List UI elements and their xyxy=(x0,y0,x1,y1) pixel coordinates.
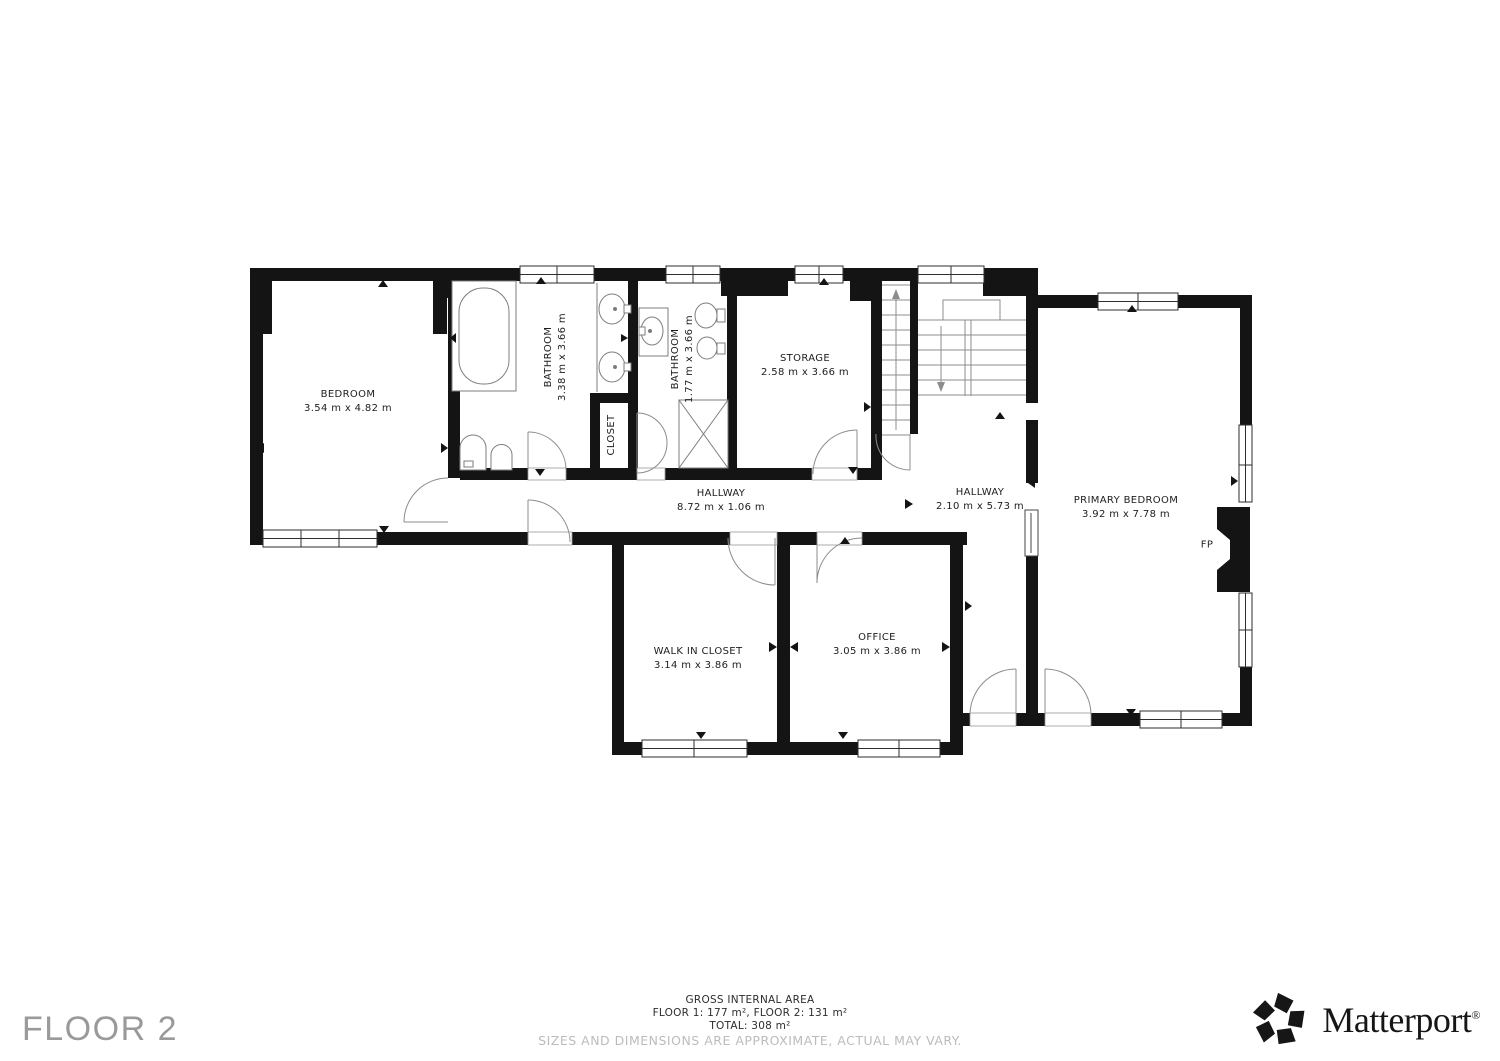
pocket-door xyxy=(1025,510,1038,556)
room-name: HALLWAY xyxy=(677,487,765,501)
room-name: OFFICE xyxy=(833,631,921,645)
fireplace-label: FP xyxy=(1201,540,1214,551)
room-name: CLOSET xyxy=(605,415,619,456)
room-label-office: OFFICE 3.05 m x 3.86 m xyxy=(833,631,921,659)
fireplace-icon xyxy=(1217,507,1250,592)
room-name: PRIMARY BEDROOM xyxy=(1074,494,1178,508)
shower-icon xyxy=(679,400,728,468)
room-label-bathroom-main: BATHROOM 3.38 m x 3.66 m xyxy=(542,313,570,401)
brand-name: Matterport xyxy=(1322,1000,1471,1040)
room-label-hallway-main: HALLWAY 8.72 m x 1.06 m xyxy=(677,487,765,515)
toilet-icon xyxy=(695,303,725,328)
sink-icon xyxy=(639,308,668,356)
room-label-hallway-upper: HALLWAY 2.10 m x 5.73 m xyxy=(936,486,1024,514)
room-dims: 3.14 m x 3.86 m xyxy=(652,659,744,673)
floor-plan-drawing xyxy=(0,0,1500,1061)
room-name: WALK IN CLOSET xyxy=(652,645,744,659)
floorplan-page: BEDROOM 3.54 m x 4.82 m BATHROOM 3.38 m … xyxy=(0,0,1500,1061)
sink-icon xyxy=(599,294,631,324)
room-name: BATHROOM xyxy=(542,313,556,401)
matterport-pinwheel-icon xyxy=(1250,991,1308,1049)
room-dims: 1.77 m x 3.66 m xyxy=(683,315,697,403)
toilet-icon xyxy=(460,435,486,470)
room-name: STORAGE xyxy=(761,352,849,366)
matterport-logo: Matterport® xyxy=(1250,991,1480,1049)
registered-mark: ® xyxy=(1471,1008,1480,1022)
matterport-wordmark: Matterport® xyxy=(1322,999,1480,1041)
room-dims: 3.92 m x 7.78 m xyxy=(1074,508,1178,522)
room-label-bathroom-small: BATHROOM 1.77 m x 3.66 m xyxy=(669,315,697,403)
room-name: BEDROOM xyxy=(304,388,392,402)
room-name: BATHROOM xyxy=(669,315,683,403)
room-dims: 2.10 m x 5.73 m xyxy=(936,500,1024,514)
room-dims: 3.54 m x 4.82 m xyxy=(304,402,392,416)
room-dims: 3.05 m x 3.86 m xyxy=(833,645,921,659)
room-label-bedroom: BEDROOM 3.54 m x 4.82 m xyxy=(304,388,392,416)
room-label-primary-bedroom: PRIMARY BEDROOM 3.92 m x 7.78 m xyxy=(1074,494,1178,522)
stairs xyxy=(882,285,1026,435)
room-dims: 2.58 m x 3.66 m xyxy=(761,366,849,380)
room-label-walk-in-closet: WALK IN CLOSET 3.14 m x 3.86 m xyxy=(652,645,744,673)
bidet-icon xyxy=(491,445,512,470)
bathtub-icon xyxy=(452,281,516,391)
room-label-closet: CLOSET xyxy=(605,415,619,456)
room-dims: 8.72 m x 1.06 m xyxy=(677,501,765,515)
room-name: HALLWAY xyxy=(936,486,1024,500)
sink-icon xyxy=(599,352,631,382)
room-dims: 3.38 m x 3.66 m xyxy=(556,313,570,401)
bidet-icon xyxy=(697,337,725,359)
room-label-storage: STORAGE 2.58 m x 3.66 m xyxy=(761,352,849,380)
